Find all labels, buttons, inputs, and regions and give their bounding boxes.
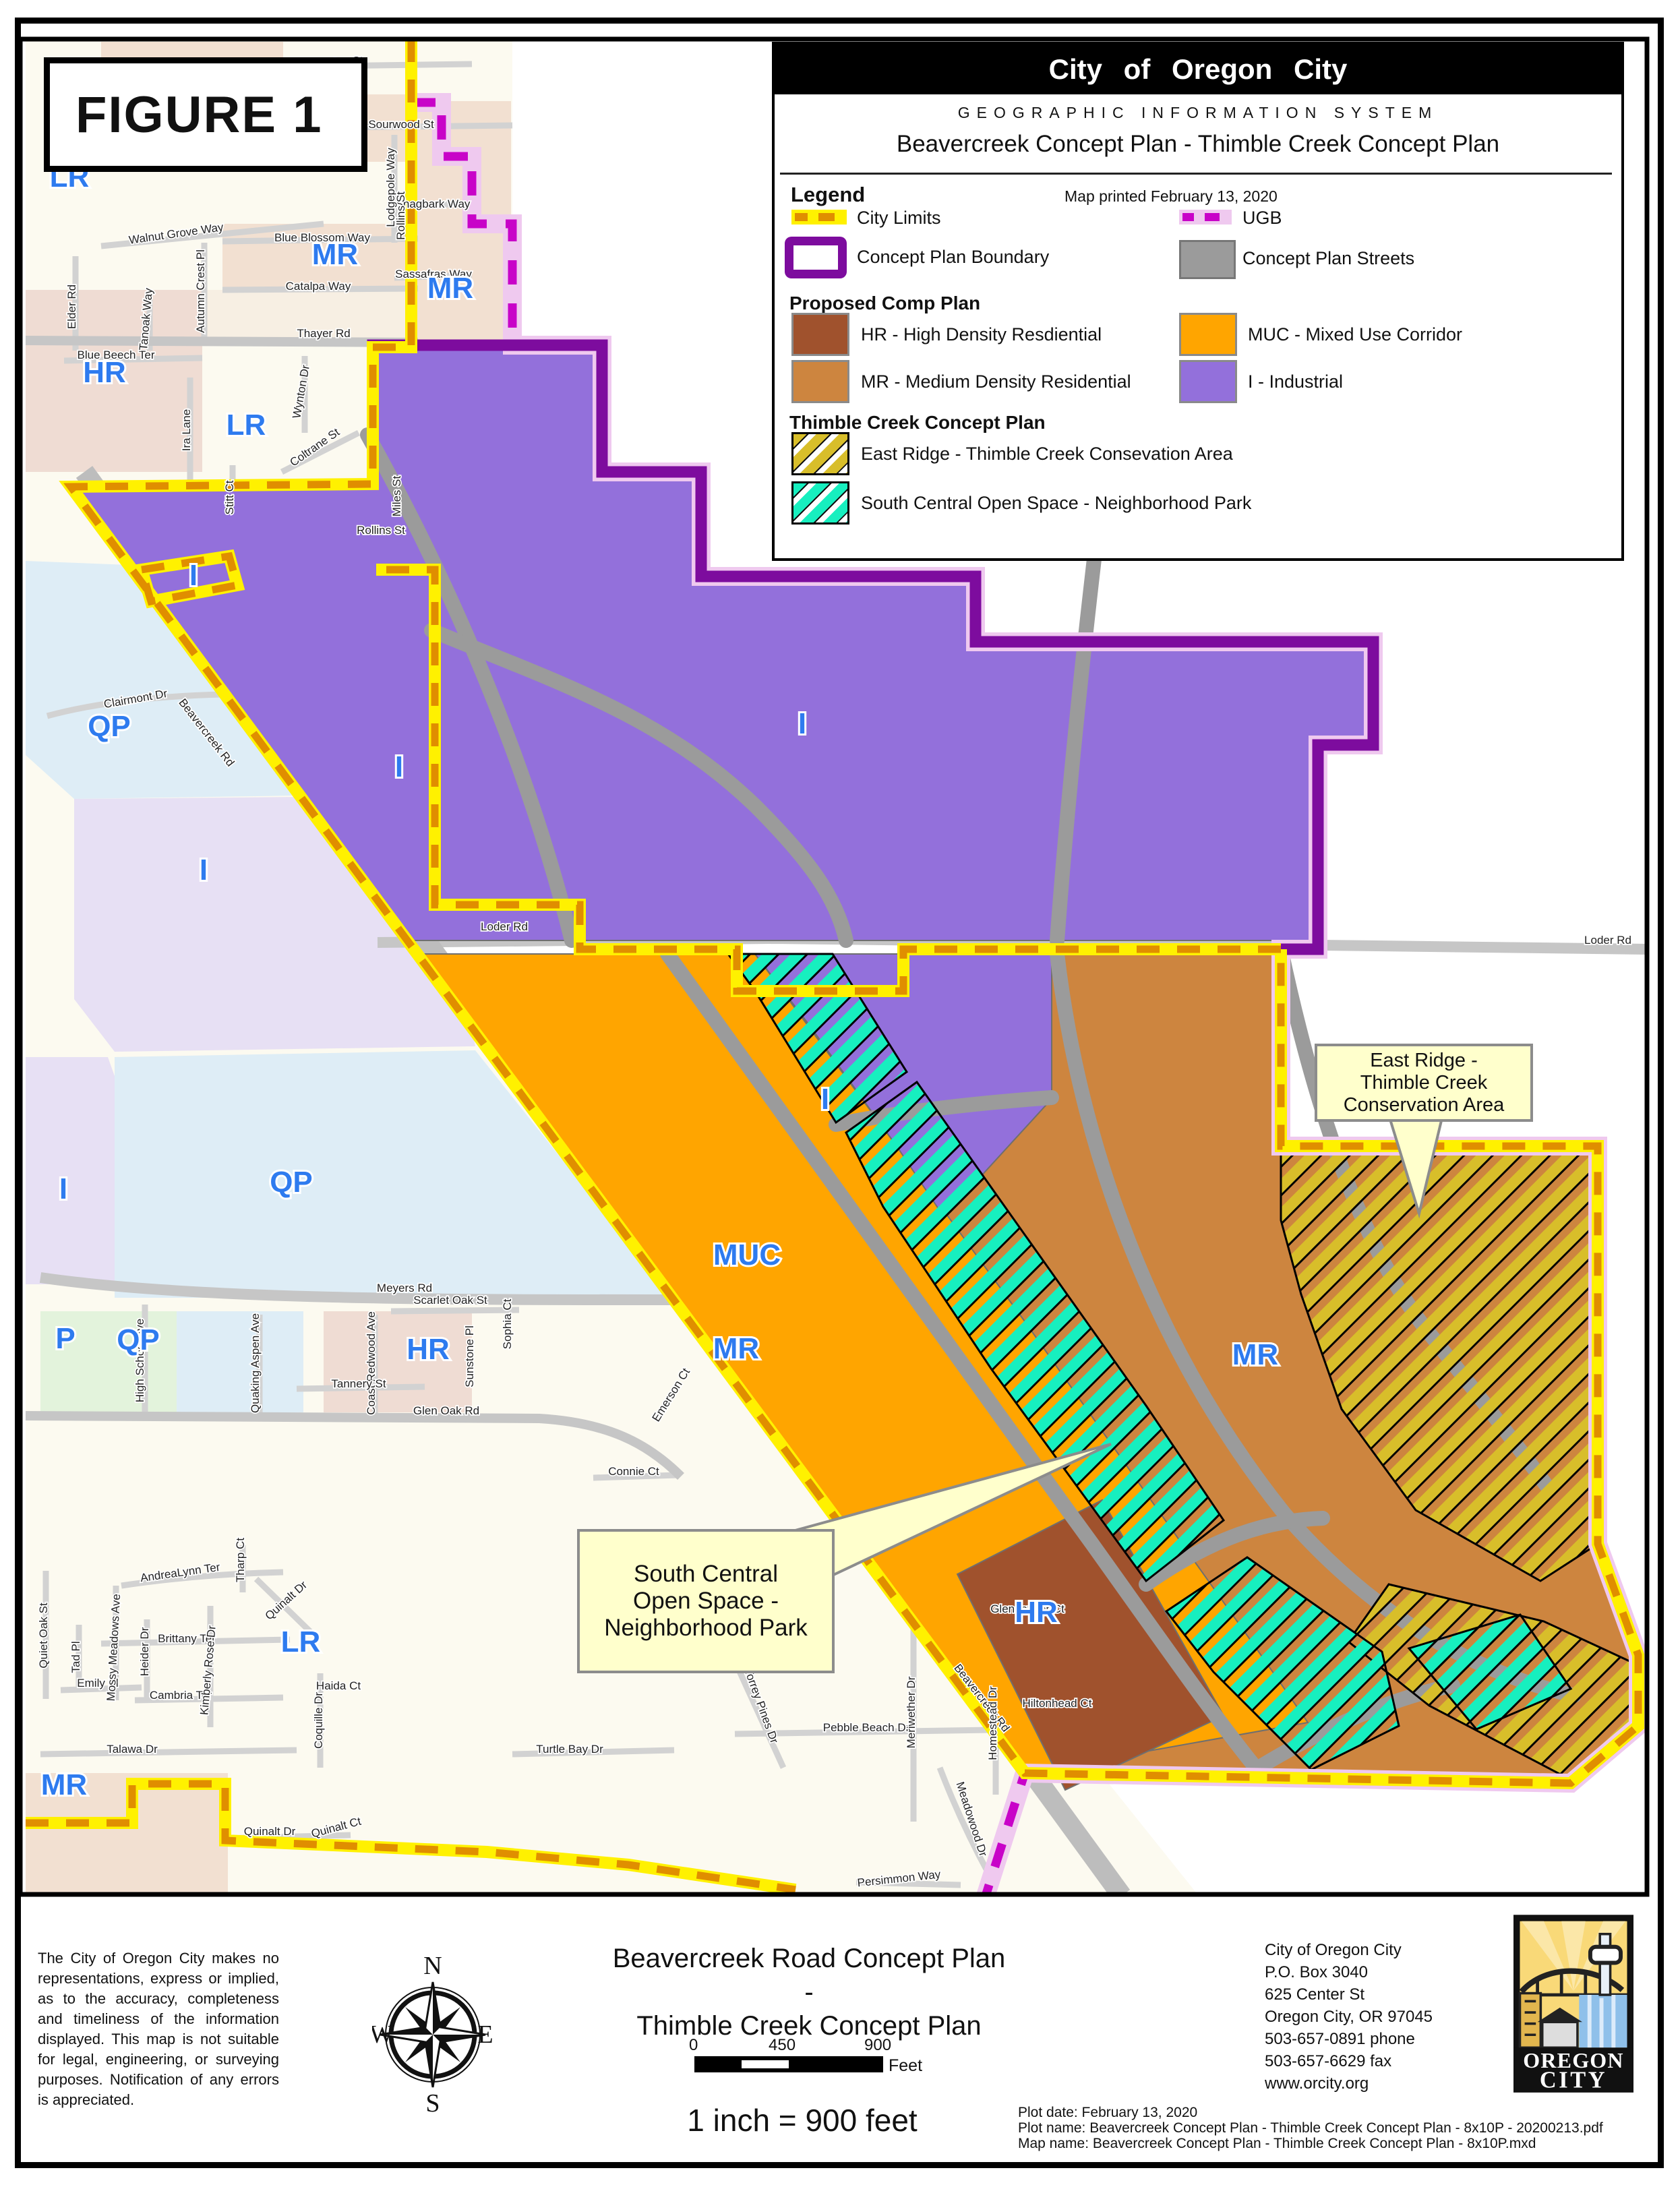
muc-label: MUC - Mixed Use Corridor xyxy=(1248,324,1462,345)
ugb-swatch xyxy=(1179,210,1232,224)
east-ridge-label: East Ridge - Thimble Creek Consevation A… xyxy=(861,444,1233,465)
map-title: Beavercreek Concept Plan - Thimble Creek… xyxy=(775,131,1621,158)
figure-box: FIGURE 1 xyxy=(44,57,367,172)
thimble-heading: Thimble Creek Concept Plan xyxy=(789,412,1046,433)
divider xyxy=(780,173,1612,175)
callout-east-ridge: East Ridge - Thimble Creek Conservation … xyxy=(1315,1044,1533,1122)
printed-note: Map printed February 13, 2020 xyxy=(1064,187,1278,206)
legend-title: Legend xyxy=(791,183,865,207)
figure-label: FIGURE 1 xyxy=(50,86,323,144)
mr-label: MR - Medium Density Residential xyxy=(861,371,1131,392)
ugb-label: UGB xyxy=(1242,208,1282,229)
city-limits-swatch xyxy=(791,210,847,224)
industrial-swatch xyxy=(1179,360,1237,403)
east-ridge-swatch xyxy=(791,432,849,475)
industrial-label: I - Industrial xyxy=(1248,371,1343,392)
comp-plan-heading: Proposed Comp Plan xyxy=(789,293,980,314)
agency-title: City of Oregon City xyxy=(775,44,1621,94)
hr-swatch xyxy=(791,313,849,356)
gis-subtitle: GEOGRAPHIC INFORMATION SYSTEM xyxy=(775,104,1621,122)
map-sheet: Sugarpine StSourwood StWalnut Grove WayS… xyxy=(0,0,1680,2187)
boundary-swatch xyxy=(785,237,847,278)
city-limits-label: City Limits xyxy=(857,208,941,229)
hr-label: HR - High Density Resdiential xyxy=(861,324,1102,345)
boundary-label: Concept Plan Boundary xyxy=(857,247,1049,268)
south-central-label: South Central Open Space - Neighborhood … xyxy=(861,493,1251,514)
mr-swatch xyxy=(791,360,849,403)
streets-label: Concept Plan Streets xyxy=(1242,248,1414,269)
callout-south-central: South Central Open Space - Neighborhood … xyxy=(577,1529,835,1673)
title-block: City of Oregon City GEOGRAPHIC INFORMATI… xyxy=(772,42,1624,561)
muc-swatch xyxy=(1179,313,1237,356)
streets-swatch xyxy=(1179,240,1236,279)
south-central-swatch xyxy=(791,481,849,525)
